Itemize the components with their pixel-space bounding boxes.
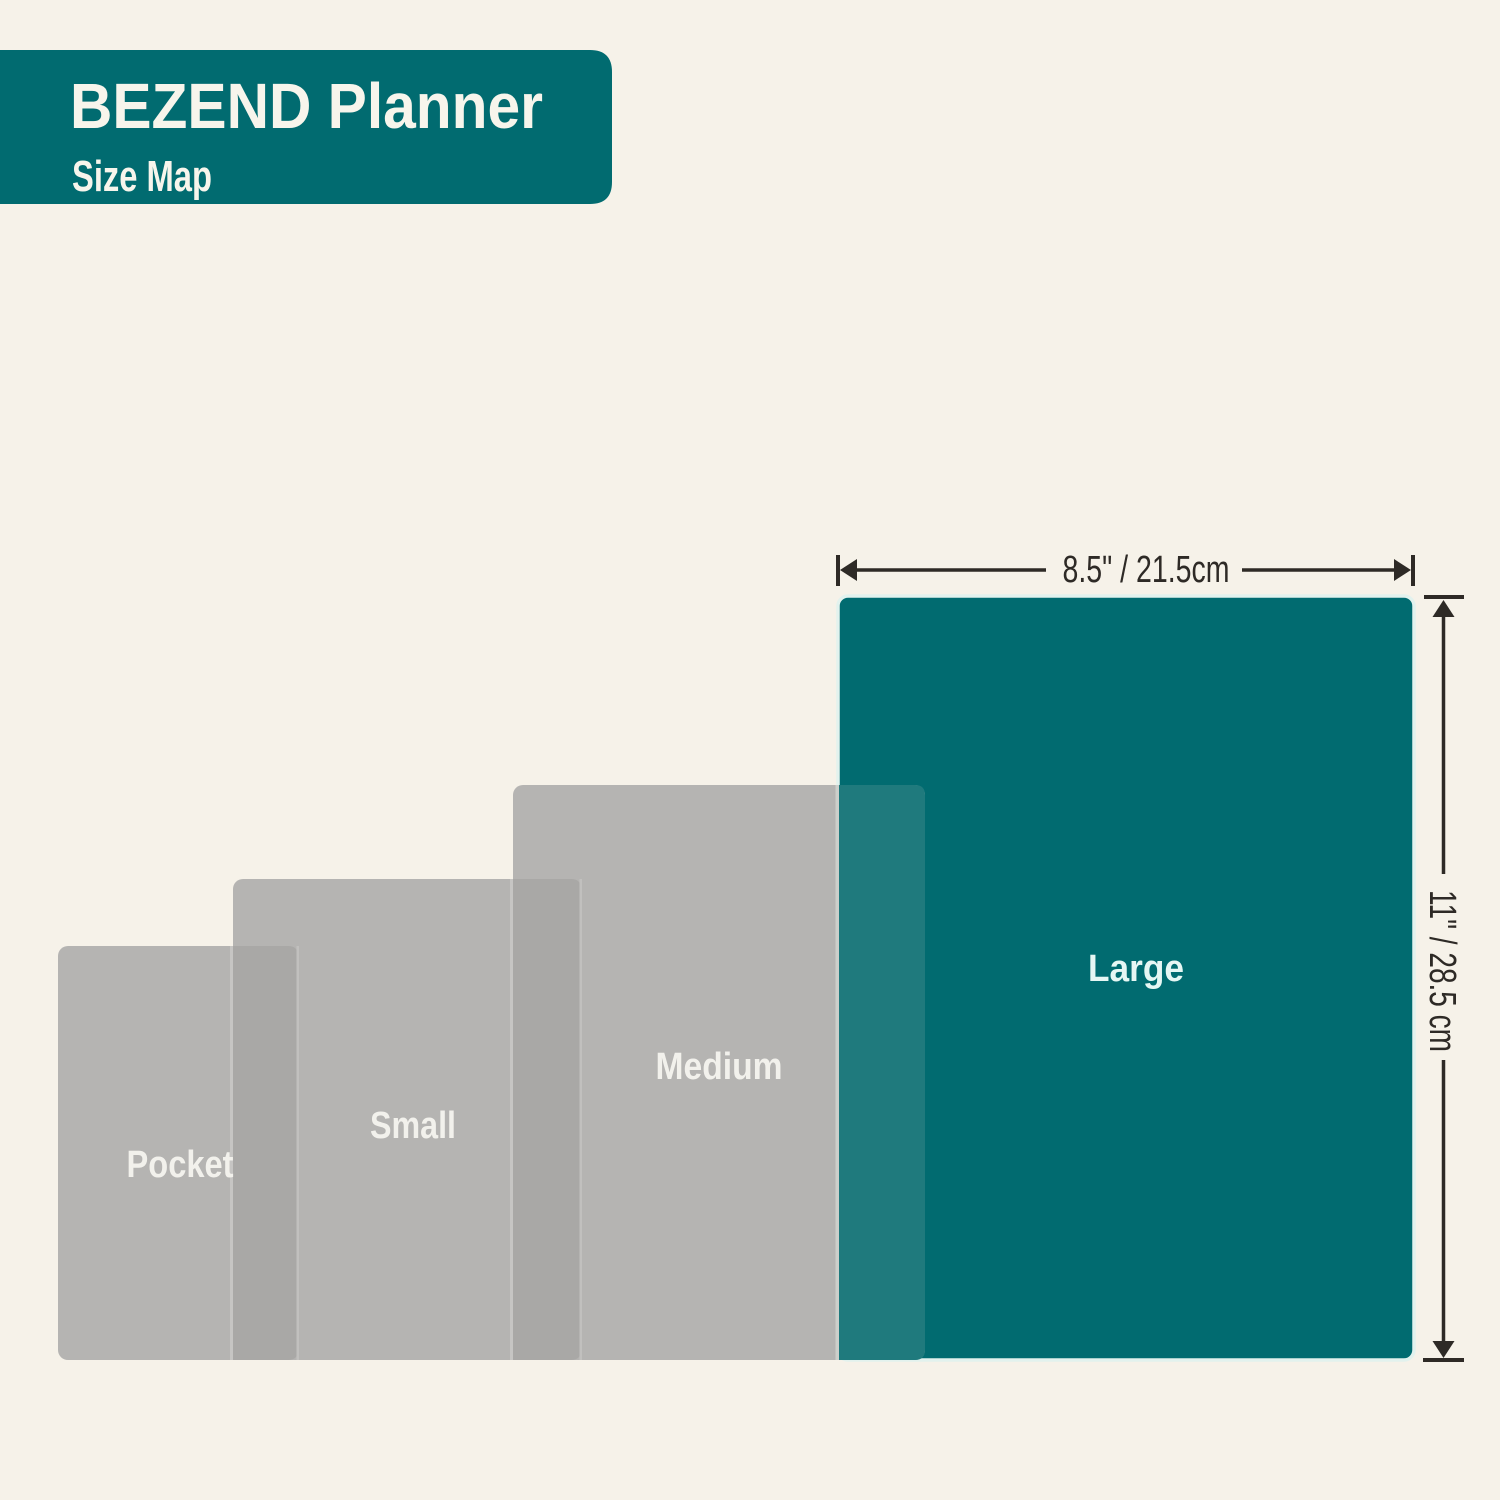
svg-text:Pocket: Pocket <box>127 1144 234 1186</box>
svg-text:Size Map: Size Map <box>72 152 212 201</box>
svg-text:Large: Large <box>1088 948 1184 990</box>
svg-text:Medium: Medium <box>656 1046 783 1088</box>
svg-text:Small: Small <box>370 1105 456 1147</box>
svg-text:BEZEND Planner: BEZEND Planner <box>70 70 543 142</box>
svg-text:11" / 28.5 cm: 11" / 28.5 cm <box>1421 890 1463 1052</box>
svg-text:8.5" / 21.5cm: 8.5" / 21.5cm <box>1063 549 1230 591</box>
